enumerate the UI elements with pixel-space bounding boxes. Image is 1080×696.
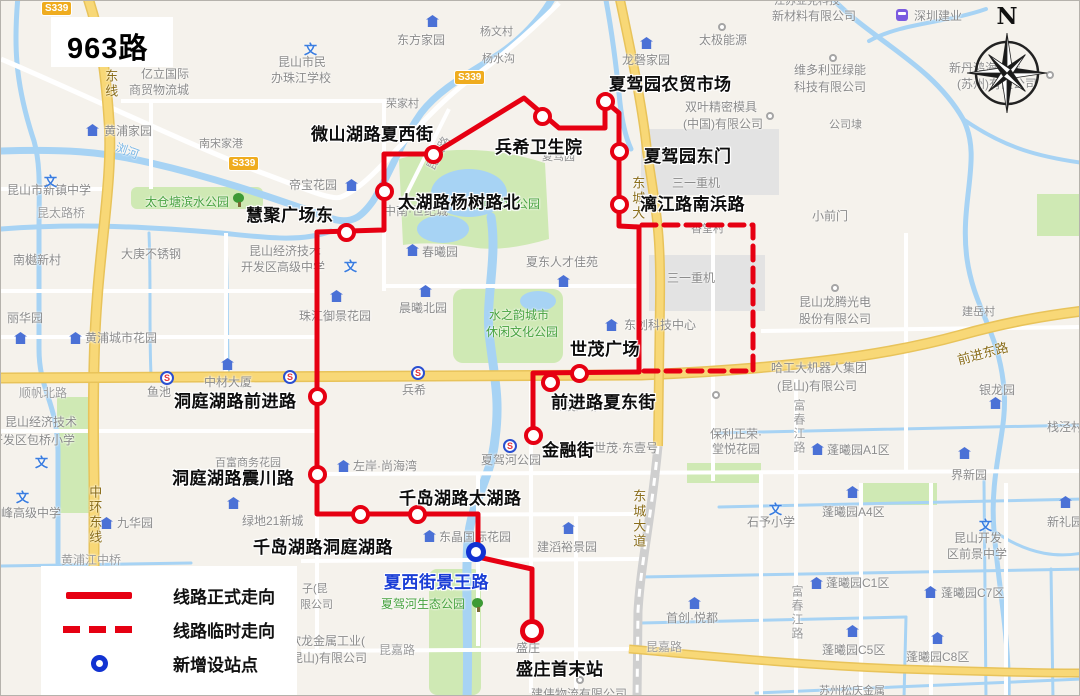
- stations-layer: 夏驾园农贸市场兵希卫生院微山湖路夏西街夏驾园东门漓江路南浜路太湖路杨树路北慧聚广…: [1, 1, 1079, 695]
- station-label: 慧聚广场东: [246, 201, 334, 226]
- station-marker: [610, 195, 629, 214]
- station-label: 金融街: [542, 436, 595, 461]
- station-label: 微山湖路夏西街: [311, 120, 434, 145]
- station-label: 盛庄首末站: [516, 655, 604, 680]
- station-marker: [308, 465, 327, 484]
- station-marker: [375, 182, 394, 201]
- station-label: 夏驾园东门: [644, 142, 732, 167]
- station-marker: [533, 107, 552, 126]
- station-marker: [424, 145, 443, 164]
- station-label: 洞庭湖路前进路: [174, 387, 297, 412]
- station-label: 世茂广场: [570, 335, 640, 360]
- station-label: 兵希卫生院: [495, 133, 583, 158]
- station-label: 千岛湖路太湖路: [399, 484, 522, 509]
- station-label: 夏驾园农贸市场: [609, 70, 732, 95]
- station-marker: [337, 223, 356, 242]
- station-label: 洞庭湖路震川路: [172, 464, 295, 489]
- station-marker: [610, 142, 629, 161]
- station-label: 前进路夏东街: [551, 388, 656, 413]
- station-label: 夏西街景王路: [384, 568, 489, 593]
- station-marker: [466, 542, 486, 562]
- bus-route-map: 昆山市新镇中学昆太路桥南樾新村丽华园黄浦城市花园亿立国际商贸物流城昆山市民办珠江…: [0, 0, 1080, 696]
- station-marker: [524, 426, 543, 445]
- station-label: 漓江路南浜路: [640, 190, 745, 215]
- station-marker: [308, 387, 327, 406]
- station-marker: [520, 619, 544, 643]
- station-label: 太湖路杨树路北: [398, 188, 521, 213]
- station-marker: [351, 505, 370, 524]
- station-marker: [570, 364, 589, 383]
- station-label: 千岛湖路洞庭湖路: [253, 533, 393, 558]
